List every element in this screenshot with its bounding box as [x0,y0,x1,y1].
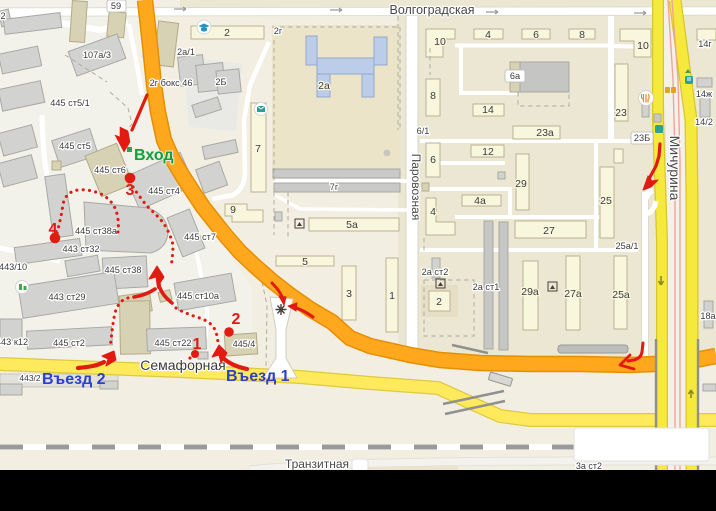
svg-text:2а ст1: 2а ст1 [473,282,500,292]
svg-text:443/10: 443/10 [0,262,27,272]
svg-text:18а: 18а [700,311,716,321]
svg-text:7: 7 [255,143,261,155]
svg-text:445 ст6: 445 ст6 [94,165,126,175]
svg-text:445 ст5: 445 ст5 [59,141,91,151]
svg-text:1: 1 [389,290,395,302]
svg-text:Мичурина: Мичурина [667,136,683,201]
svg-text:445 ст22: 445 ст22 [155,338,192,348]
svg-text:9: 9 [230,204,236,216]
svg-text:3а ст2: 3а ст2 [576,461,602,471]
svg-text:10: 10 [434,36,446,48]
svg-text:6/1: 6/1 [417,126,430,136]
svg-text:23Б: 23Б [634,133,650,143]
svg-text:4а: 4а [474,195,486,207]
svg-text:2г: 2г [274,26,283,36]
svg-text:2: 2 [224,27,230,39]
svg-text:6: 6 [533,29,539,41]
svg-text:25а: 25а [612,289,630,301]
svg-text:Семафорная: Семафорная [140,357,226,373]
svg-text:107а/3: 107а/3 [83,50,111,60]
svg-text:4: 4 [49,221,58,238]
svg-text:10: 10 [637,40,649,52]
svg-text:2а ст2: 2а ст2 [422,267,449,277]
svg-text:5а: 5а [346,219,358,231]
svg-text:Въезд 2: Въезд 2 [42,371,106,388]
svg-text:445 ст2: 445 ст2 [53,338,85,348]
svg-text:3: 3 [126,182,135,199]
svg-text:4: 4 [430,206,436,218]
svg-text:59: 59 [111,1,121,11]
svg-text:445 ст7: 445 ст7 [184,232,216,242]
svg-text:Волгоградская: Волгоградская [389,3,474,17]
svg-text:445 ст10а: 445 ст10а [177,291,220,301]
svg-text:29: 29 [515,178,527,190]
svg-text:29а: 29а [521,286,539,298]
svg-text:Паровозная: Паровозная [409,154,423,221]
svg-text:2а/1: 2а/1 [177,47,195,57]
svg-text:12: 12 [482,146,494,158]
svg-text:7г: 7г [330,182,339,192]
svg-text:23а: 23а [536,127,554,139]
svg-text:23: 23 [615,107,627,119]
svg-text:2а: 2а [318,80,330,92]
svg-text:445 ст38: 445 ст38 [105,265,142,275]
svg-text:2: 2 [0,11,5,21]
svg-text:445 ст5/1: 445 ст5/1 [50,98,89,108]
svg-text:443/2: 443/2 [19,373,41,383]
svg-text:2: 2 [436,296,442,308]
svg-text:1: 1 [193,336,202,353]
svg-text:Вход: Вход [134,147,174,164]
svg-text:14г: 14г [698,39,712,49]
svg-text:445/4: 445/4 [233,339,256,349]
svg-text:6а: 6а [510,71,521,81]
svg-text:2: 2 [232,311,241,328]
svg-text:27а: 27а [564,288,582,300]
svg-text:445 ст38а: 445 ст38а [75,226,118,236]
svg-text:8: 8 [430,90,436,102]
svg-text:2г бокс 46: 2г бокс 46 [150,78,193,88]
svg-text:6: 6 [430,154,436,166]
svg-text:445 ст4: 445 ст4 [148,186,180,196]
svg-text:2Б: 2Б [215,77,226,87]
svg-text:14: 14 [482,104,494,116]
svg-text:3: 3 [346,288,352,300]
svg-text:25: 25 [600,195,612,207]
svg-text:443 к12: 443 к12 [0,337,28,347]
svg-text:Въезд 1: Въезд 1 [226,368,290,385]
svg-text:4: 4 [485,29,491,41]
svg-text:14/2: 14/2 [695,117,713,127]
svg-text:14ж: 14ж [696,89,713,99]
svg-text:Транзитная: Транзитная [285,457,349,471]
svg-text:443 ст29: 443 ст29 [49,292,86,302]
svg-text:8: 8 [579,29,585,41]
svg-text:443 ст32: 443 ст32 [63,244,100,254]
svg-text:27: 27 [543,225,555,237]
svg-text:25а/1: 25а/1 [616,241,639,251]
svg-text:5: 5 [302,256,308,268]
